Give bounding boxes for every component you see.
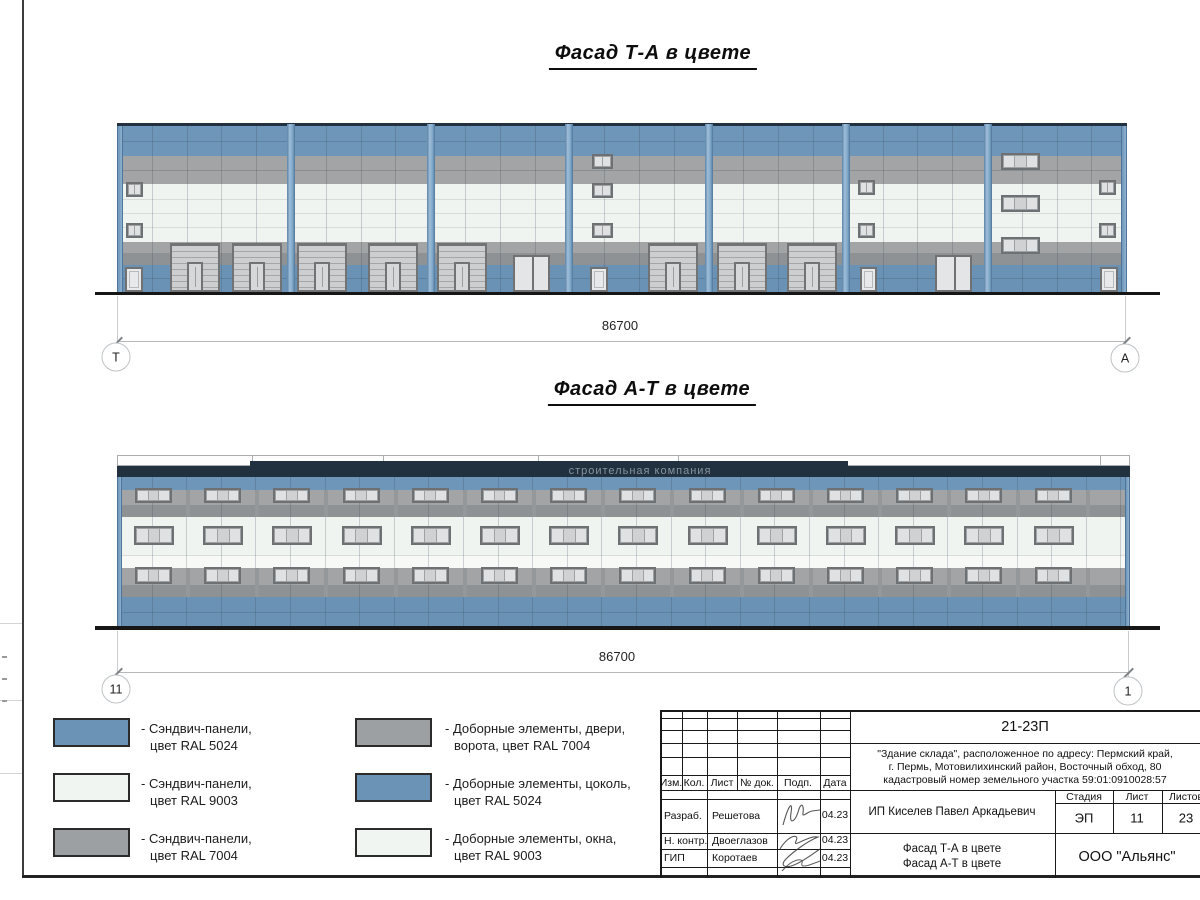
list-value: 11 — [1130, 811, 1144, 826]
col-ndok: № док. — [740, 777, 774, 789]
col-data: Дата — [823, 777, 846, 789]
signature-gip — [774, 831, 826, 877]
doc-number: 21-23П — [1001, 719, 1049, 735]
listov-value: 23 — [1179, 811, 1193, 826]
signer-date-1: 04.23 — [822, 809, 848, 821]
stage-col: Стадия — [1066, 791, 1102, 803]
signer-role-1: Разраб. — [664, 810, 702, 822]
stage-value: ЭП — [1075, 811, 1094, 826]
signer-name-2: Двоеглазов — [712, 835, 768, 847]
sheet-title-line-1: Фасад Т-А в цвете — [903, 843, 1001, 855]
address-line-3: кадастровый номер земельного участка 59:… — [883, 774, 1166, 786]
col-podp: Подп. — [784, 777, 812, 789]
address-line-2: г. Пермь, Мотовилихинский район, Восточн… — [889, 761, 1162, 773]
drawing-sheet: Фасад Т-А в цвете Фасад А-Т в цвете стро… — [0, 0, 1200, 900]
signer-role-2: Н. контр. — [664, 835, 707, 847]
col-list: Лист — [711, 777, 734, 789]
signature-razrab — [779, 799, 823, 830]
signer-name-3: Коротаев — [712, 852, 757, 864]
signer-name-1: Решетова — [712, 810, 760, 822]
list-col: Лист — [1126, 791, 1149, 803]
signer-role-3: ГИП — [664, 852, 685, 864]
sheet-title-line-2: Фасад А-Т в цвете — [903, 858, 1001, 870]
title-block: 21-23П "Здание склада", расположенное по… — [0, 0, 1200, 900]
col-kol: Кол. — [684, 777, 705, 789]
client-name: ИП Киселев Павел Аркадьевич — [869, 806, 1036, 818]
col-izm: Изм. — [660, 777, 683, 789]
company-name: ООО "Альянс" — [1079, 849, 1176, 865]
listov-col: Листов — [1169, 791, 1200, 803]
address-line-1: "Здание склада", расположенное по адресу… — [877, 748, 1173, 760]
